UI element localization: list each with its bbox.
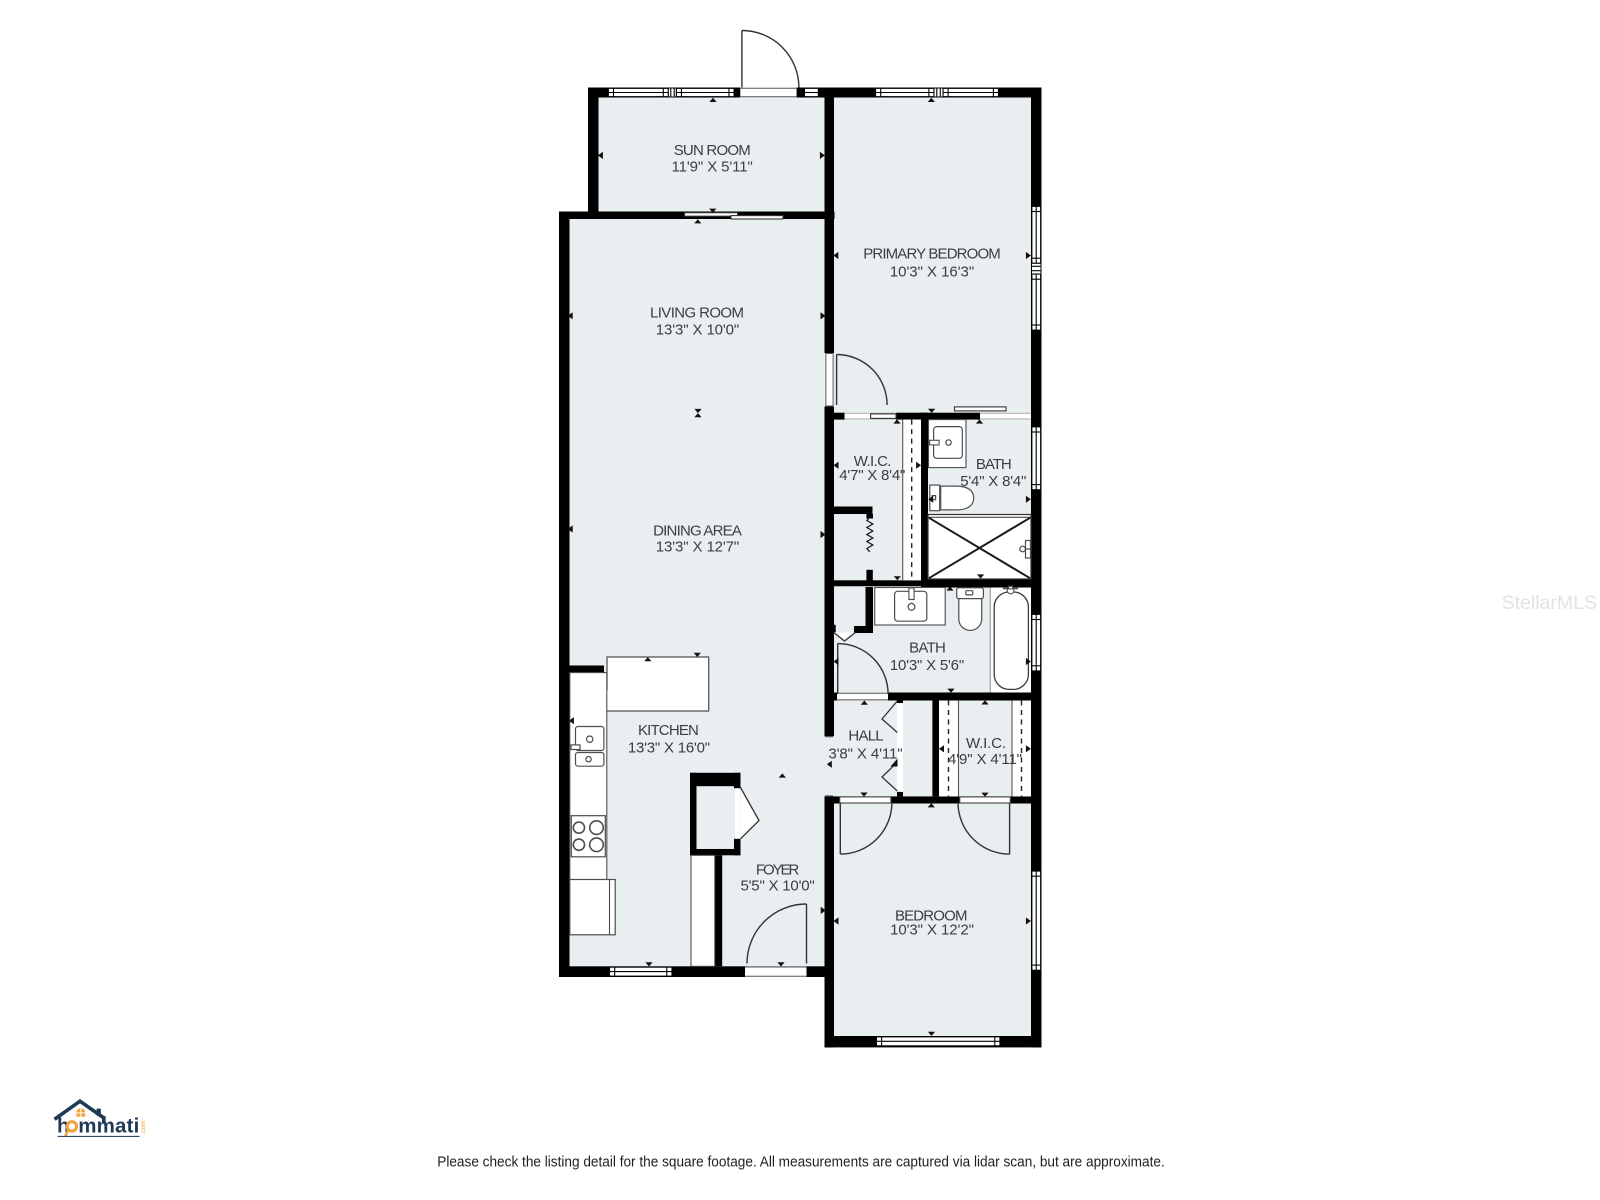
svg-text:11'9" X 5'11": 11'9" X 5'11" — [672, 159, 753, 176]
svg-text:13'3" X 12'7": 13'3" X 12'7" — [656, 539, 739, 556]
svg-text:4'7" X 8'4": 4'7" X 8'4" — [839, 467, 905, 484]
svg-text:13'3" X 16'0": 13'3" X 16'0" — [628, 739, 710, 756]
svg-text:DINING AREA: DINING AREA — [653, 522, 742, 539]
svg-text:PRIMARY BEDROOM: PRIMARY BEDROOM — [863, 246, 1001, 263]
svg-text:Please check the listing detai: Please check the listing detail for the … — [437, 1154, 1165, 1171]
svg-text:5'4" X 8'4": 5'4" X 8'4" — [960, 473, 1026, 490]
svg-text:10'3" X 12'2": 10'3" X 12'2" — [890, 922, 974, 939]
svg-text:KITCHEN: KITCHEN — [638, 722, 699, 739]
svg-text:3'8" X 4'11": 3'8" X 4'11" — [828, 746, 902, 763]
svg-text:FOYER: FOYER — [756, 862, 800, 879]
svg-text:.com: .com — [140, 1120, 147, 1134]
svg-text:BATH: BATH — [909, 640, 946, 657]
svg-text:13'3" X 10'0": 13'3" X 10'0" — [656, 321, 739, 338]
svg-text:StellarMLS: StellarMLS — [1502, 592, 1597, 614]
svg-text:10'3" X 5'6": 10'3" X 5'6" — [890, 657, 964, 674]
svg-text:5'5" X 10'0": 5'5" X 10'0" — [741, 878, 815, 895]
svg-text:W.I.C.: W.I.C. — [966, 735, 1006, 752]
svg-text:HALL: HALL — [848, 728, 883, 745]
svg-text:4'9" X 4'11": 4'9" X 4'11" — [948, 751, 1022, 768]
svg-text:LIVING ROOM: LIVING ROOM — [650, 305, 744, 322]
svg-text:mmati: mmati — [78, 1115, 139, 1138]
svg-text:10'3" X 16'3": 10'3" X 16'3" — [890, 263, 974, 280]
svg-text:SUN ROOM: SUN ROOM — [674, 142, 751, 159]
svg-text:BATH: BATH — [976, 456, 1012, 473]
